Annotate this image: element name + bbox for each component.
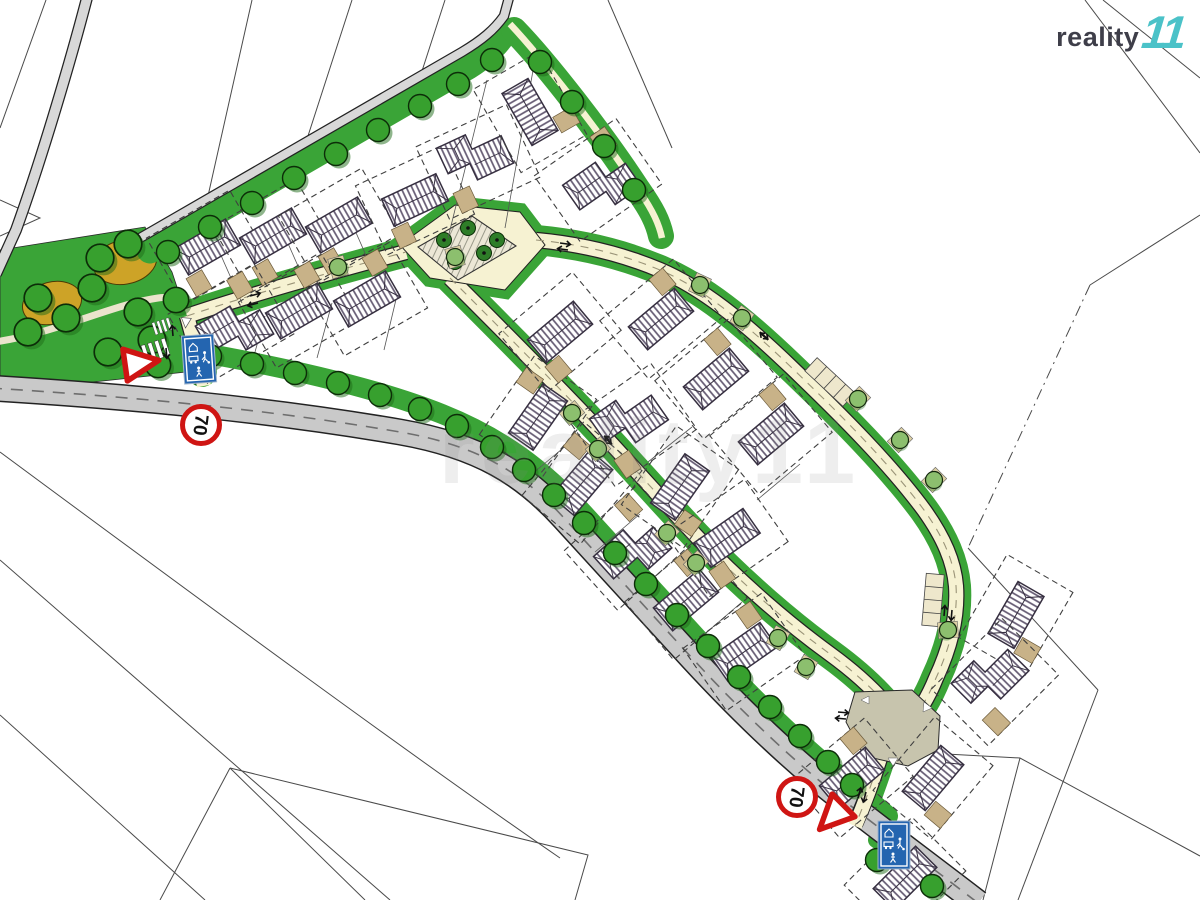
logo-mark-11: 11 [1140,14,1186,51]
reality11-logo: reality 11 [1056,14,1184,51]
site-plan-page: 70 70 reality11 reality 11 [0,0,1200,900]
speed-limit-70-west: 70 [183,407,220,444]
top-left-road [0,0,88,274]
speed-limit-70-south: 70 [779,779,816,816]
site-plan-map: 70 70 [0,0,1200,900]
residential-zone-sign-south [878,821,910,869]
speed-limit-70-south-value: 70 [784,785,807,809]
logo-text: reality [1056,24,1139,51]
residential-zone-sign-west [181,334,216,384]
speed-limit-70-west-value: 70 [188,413,211,437]
